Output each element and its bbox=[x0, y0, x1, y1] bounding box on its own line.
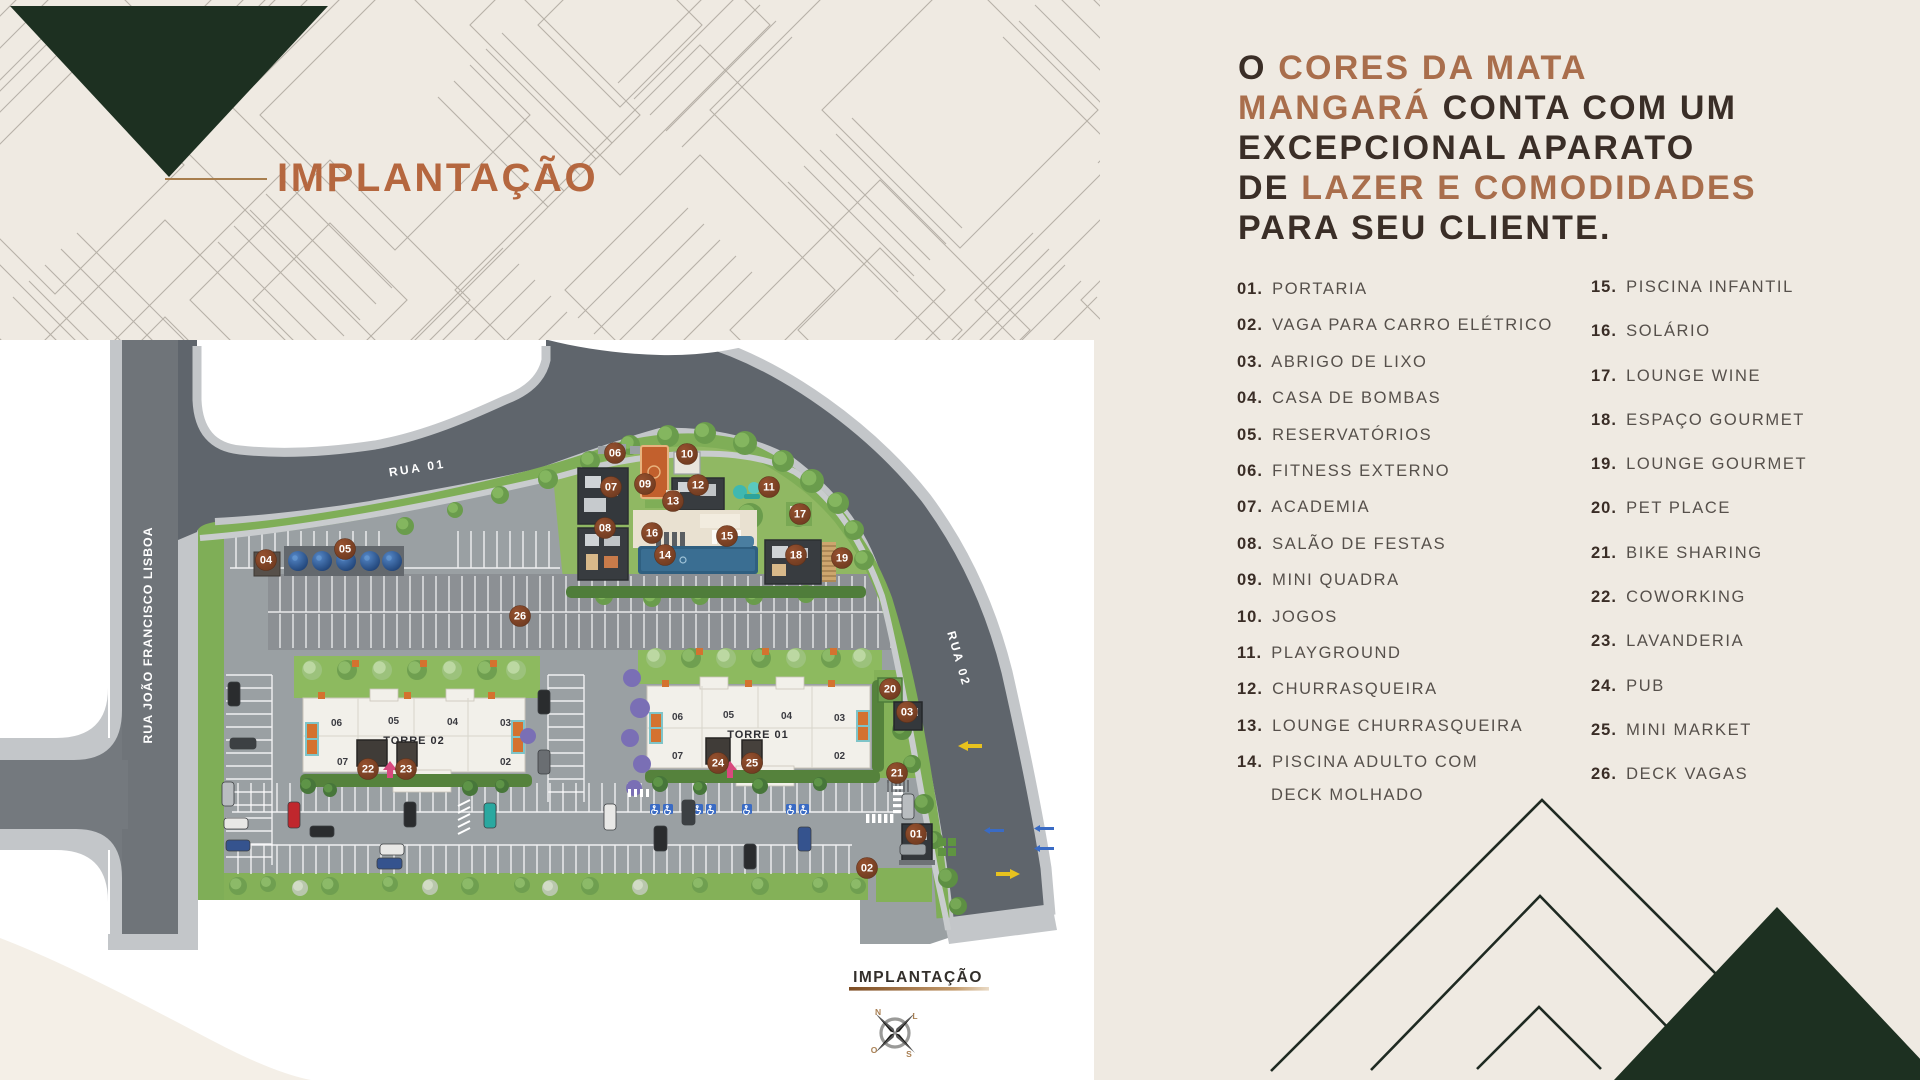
svg-text:19: 19 bbox=[836, 553, 848, 565]
svg-text:09: 09 bbox=[639, 479, 651, 491]
svg-text:16: 16 bbox=[646, 528, 658, 540]
svg-text:05: 05 bbox=[388, 716, 400, 727]
svg-text:03: 03 bbox=[500, 718, 512, 729]
svg-text:26: 26 bbox=[514, 611, 526, 623]
svg-text:07: 07 bbox=[337, 757, 349, 768]
svg-text:04: 04 bbox=[781, 711, 793, 722]
svg-text:06: 06 bbox=[672, 712, 684, 723]
svg-text:23: 23 bbox=[400, 764, 412, 776]
svg-text:N: N bbox=[875, 1007, 881, 1017]
svg-text:02: 02 bbox=[861, 863, 873, 875]
svg-text:01: 01 bbox=[910, 829, 922, 841]
svg-text:06: 06 bbox=[609, 448, 621, 460]
svg-text:03: 03 bbox=[901, 707, 913, 719]
svg-text:S: S bbox=[906, 1049, 912, 1059]
svg-text:12: 12 bbox=[692, 480, 704, 492]
svg-text:07: 07 bbox=[605, 482, 617, 494]
svg-text:05: 05 bbox=[339, 544, 351, 556]
svg-text:04: 04 bbox=[447, 717, 459, 728]
svg-text:05: 05 bbox=[723, 710, 735, 721]
svg-text:20: 20 bbox=[884, 684, 896, 696]
svg-text:10: 10 bbox=[681, 449, 693, 461]
svg-text:IMPLANTAÇÃO: IMPLANTAÇÃO bbox=[853, 968, 983, 986]
svg-text:03: 03 bbox=[834, 713, 846, 724]
svg-text:04: 04 bbox=[260, 555, 273, 567]
svg-text:11: 11 bbox=[763, 482, 775, 494]
svg-text:14: 14 bbox=[659, 550, 672, 562]
svg-text:22: 22 bbox=[362, 764, 374, 776]
svg-text:L: L bbox=[912, 1011, 917, 1021]
svg-text:06: 06 bbox=[331, 718, 343, 729]
svg-text:02: 02 bbox=[500, 757, 512, 768]
svg-text:15: 15 bbox=[721, 531, 733, 543]
svg-text:17: 17 bbox=[794, 509, 806, 521]
svg-text:O: O bbox=[871, 1045, 878, 1055]
svg-text:24: 24 bbox=[712, 758, 725, 770]
svg-text:07: 07 bbox=[672, 751, 684, 762]
svg-text:21: 21 bbox=[891, 768, 903, 780]
svg-text:02: 02 bbox=[834, 751, 846, 762]
svg-text:18: 18 bbox=[790, 550, 802, 562]
svg-text:TORRE 01: TORRE 01 bbox=[727, 729, 789, 741]
svg-text:13: 13 bbox=[667, 496, 679, 508]
svg-text:08: 08 bbox=[599, 523, 611, 535]
svg-text:25: 25 bbox=[746, 758, 758, 770]
svg-text:RUA JOÃO FRANCISCO LISBOA: RUA JOÃO FRANCISCO LISBOA bbox=[140, 526, 155, 743]
